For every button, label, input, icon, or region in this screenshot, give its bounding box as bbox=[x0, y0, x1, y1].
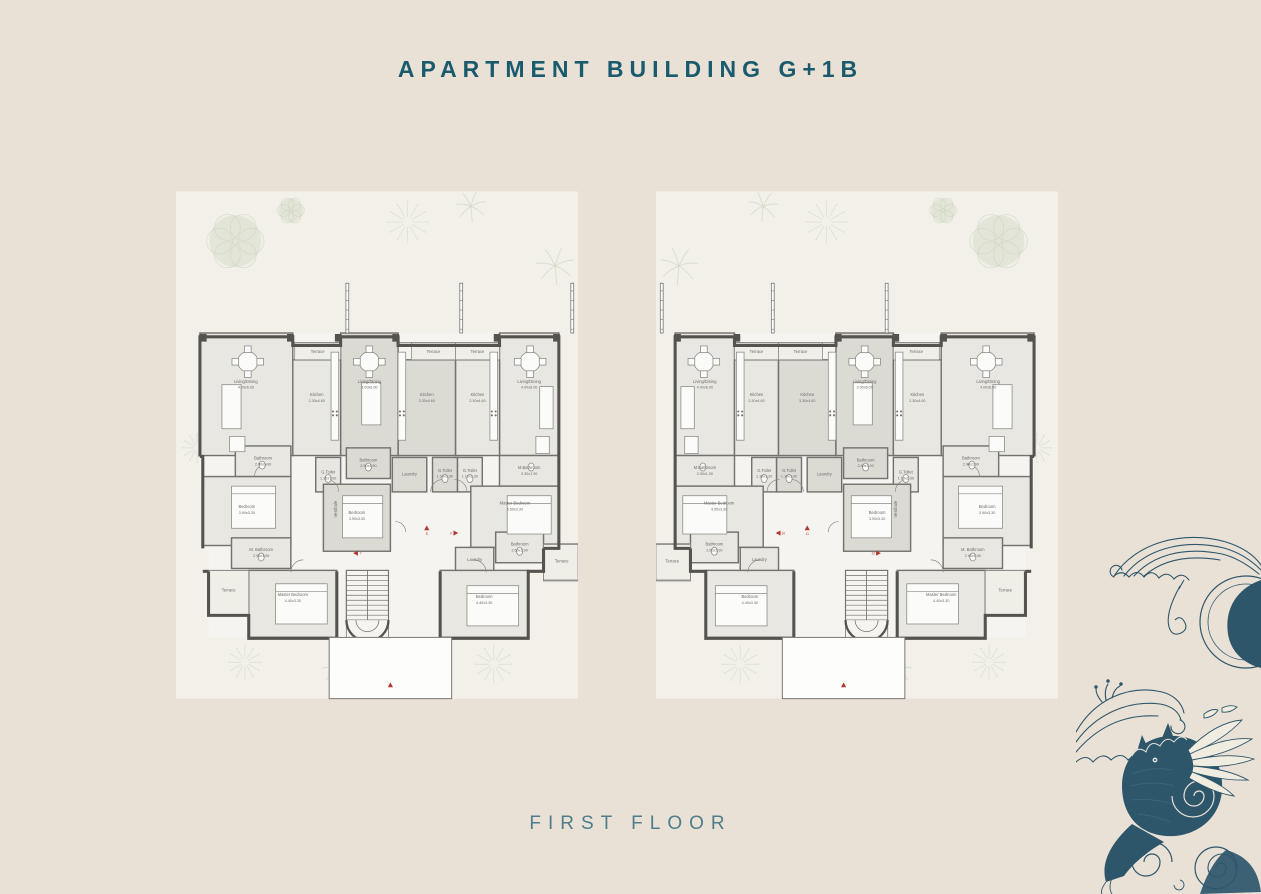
room-dims: 4.00x6.00 bbox=[980, 386, 996, 390]
svg-text:9: 9 bbox=[450, 531, 452, 535]
room-dims: 1.10x1.30 bbox=[462, 475, 478, 479]
room-label: Terrace bbox=[665, 559, 679, 564]
svg-text:7: 7 bbox=[360, 551, 362, 555]
room-label: Kitchen bbox=[471, 392, 485, 397]
room-dims: 1.10x1.90 bbox=[898, 477, 914, 481]
room-dims: 4.40x3.30 bbox=[285, 599, 301, 603]
room-dims: 1.10x1.90 bbox=[781, 475, 797, 479]
big-swirl-circle bbox=[1200, 576, 1261, 668]
entrance-court bbox=[329, 637, 452, 698]
droplet-swirl bbox=[1168, 580, 1186, 634]
room-dims: 3.30x1.90 bbox=[697, 472, 713, 476]
room-label: Master Bedroom bbox=[926, 592, 957, 597]
entrance-court bbox=[782, 637, 905, 698]
room-dims: 1.10x1.30 bbox=[756, 475, 772, 479]
room-label: Terrace bbox=[555, 559, 569, 564]
svg-text:8: 8 bbox=[426, 532, 428, 536]
room-label: Terrace bbox=[909, 349, 923, 354]
page-title: APARTMENT BUILDING G+1B bbox=[0, 56, 1261, 83]
room-dims: 2.30x4.60 bbox=[748, 399, 764, 403]
room-label: Bedroom bbox=[476, 594, 493, 599]
room-dims: 4.40x3.30 bbox=[933, 599, 949, 603]
room-dims: 2.30x4.60 bbox=[309, 399, 325, 403]
room-label: Master Bedroom bbox=[704, 500, 735, 505]
room-label: Terrace bbox=[427, 349, 441, 354]
room-dims: 4.50x3.30 bbox=[711, 507, 727, 511]
room-label: G.Toilet bbox=[463, 468, 478, 473]
room-label: Terrace bbox=[471, 349, 485, 354]
room-label: Laundry bbox=[752, 557, 768, 562]
room-area bbox=[398, 360, 455, 456]
room-dims: 2.30x4.60 bbox=[469, 399, 485, 403]
room-dims: 3.90x3.30 bbox=[979, 511, 995, 515]
page-canvas: APARTMENT BUILDING G+1B Living/Dining4.0… bbox=[0, 0, 1261, 894]
room-label: G.Toilet bbox=[782, 468, 797, 473]
room-dims: 2.90x1.90 bbox=[965, 554, 981, 558]
room-label: Bedroom bbox=[979, 504, 996, 509]
room-dims: 4.00x6.00 bbox=[697, 386, 713, 390]
room-dims: 3.00x6.00 bbox=[856, 386, 872, 390]
room-dims: 4.40x3.30 bbox=[476, 601, 492, 605]
room-label: Laundry bbox=[467, 557, 483, 562]
room-dims: 2.90x1.90 bbox=[963, 462, 979, 466]
room-label: M.Bathroom bbox=[518, 465, 541, 470]
room-label: Bathroom bbox=[705, 542, 723, 547]
room-label: Vestibule bbox=[333, 500, 338, 517]
room-label: Vestibule bbox=[893, 500, 898, 517]
svg-text:11: 11 bbox=[806, 532, 810, 536]
room-label: Bathroom bbox=[511, 542, 529, 547]
room-label: Living/Dining bbox=[234, 379, 258, 384]
svg-text:10: 10 bbox=[781, 531, 785, 535]
room-label: Living/Dining bbox=[358, 379, 382, 384]
room-label: Master Bedroom bbox=[278, 592, 309, 597]
room-label: Kitchen bbox=[420, 392, 434, 397]
room-label: Living/Dining bbox=[693, 379, 717, 384]
floor-label: FIRST FLOOR bbox=[0, 813, 1261, 835]
room-dims: 3.90x3.30 bbox=[349, 517, 365, 521]
room-label: Bathroom bbox=[857, 457, 875, 462]
room-dims: 2.90x1.90 bbox=[253, 554, 269, 558]
room-dims: 3.90x3.30 bbox=[869, 517, 885, 521]
bird-wave-illustration bbox=[1076, 524, 1261, 894]
wave-crest-top bbox=[1110, 537, 1261, 580]
floor-plan-right: Living/Dining4.00x6.00Kitchen2.30x4.60Ki… bbox=[656, 180, 1058, 710]
floor-plan-left: Living/Dining4.00x6.00Kitchen2.30x4.60Ki… bbox=[176, 180, 578, 710]
room-label: Terrace bbox=[999, 587, 1013, 592]
room-label: Bedroom bbox=[741, 594, 758, 599]
room-label: Kitchen bbox=[310, 392, 324, 397]
room-label: M. Bathroom bbox=[961, 547, 985, 552]
room-label: G.Toilet bbox=[757, 468, 772, 473]
room-label: Terrace bbox=[750, 349, 764, 354]
room-label: G.Toilet bbox=[438, 468, 453, 473]
room-label: Terrace bbox=[311, 349, 325, 354]
room-label: Bathroom bbox=[254, 455, 272, 460]
room-dims: 2.60x1.90 bbox=[511, 548, 527, 552]
room-dims: 2.60x1.90 bbox=[706, 548, 722, 552]
room-label: Laundry bbox=[402, 472, 418, 477]
room-dims: 2.90x1.90 bbox=[857, 464, 873, 468]
room-dims: 1.10x1.90 bbox=[320, 477, 336, 481]
room-label: M. Bathroom bbox=[249, 547, 273, 552]
svg-text:12: 12 bbox=[871, 551, 875, 555]
room-label: Laundry bbox=[817, 472, 833, 477]
room-label: M.Bathroom bbox=[694, 465, 717, 470]
room-dims: 2.90x1.90 bbox=[360, 464, 376, 468]
room-label: Terrace bbox=[222, 587, 236, 592]
room-label: G.Toilet bbox=[321, 470, 336, 475]
room-label: Kitchen bbox=[800, 392, 814, 397]
room-label: Bathroom bbox=[962, 455, 980, 460]
room-dims: 3.30x4.60 bbox=[799, 399, 815, 403]
room-dims: 2.90x1.90 bbox=[255, 462, 271, 466]
room-dims: 3.90x3.30 bbox=[239, 511, 255, 515]
room-dims: 4.00x6.00 bbox=[521, 386, 537, 390]
room-label: Bathroom bbox=[359, 457, 377, 462]
room-dims: 3.30x4.60 bbox=[419, 399, 435, 403]
room-dims: 3.30x1.90 bbox=[521, 472, 537, 476]
room-label: Master Bedroom bbox=[500, 500, 531, 505]
room-label: Kitchen bbox=[750, 392, 764, 397]
room-label: Living/Dining bbox=[976, 379, 1000, 384]
room-label: Kitchen bbox=[910, 392, 924, 397]
room-label: Living/Dining bbox=[517, 379, 541, 384]
room-label: Living/Dining bbox=[853, 379, 877, 384]
room-label: Bedroom bbox=[349, 510, 366, 515]
room-dims: 1.10x1.90 bbox=[437, 475, 453, 479]
room-dims: 3.00x6.00 bbox=[361, 386, 377, 390]
room-dims: 4.50x3.30 bbox=[507, 507, 523, 511]
room-area bbox=[779, 360, 836, 456]
room-label: Terrace bbox=[794, 349, 808, 354]
room-dims: 4.40x3.30 bbox=[742, 601, 758, 605]
room-label: G.Toilet bbox=[899, 470, 914, 475]
room-label: Bedroom bbox=[869, 510, 886, 515]
room-dims: 2.30x4.60 bbox=[909, 399, 925, 403]
room-label: Bedroom bbox=[238, 504, 255, 509]
room-dims: 4.00x6.00 bbox=[238, 386, 254, 390]
